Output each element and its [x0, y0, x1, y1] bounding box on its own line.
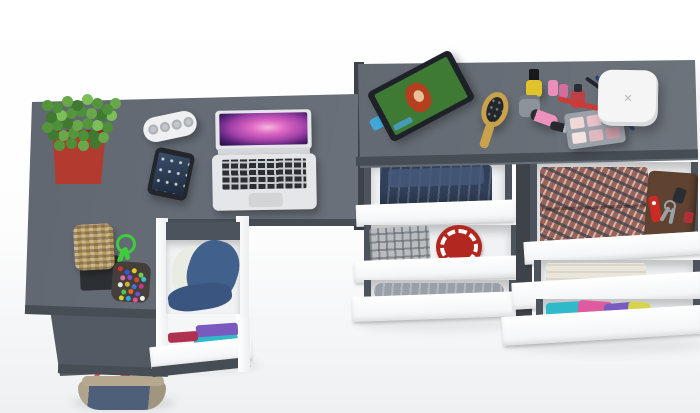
knife-emblem-icon: [652, 201, 657, 206]
bead-pouch-keychain: [110, 232, 154, 306]
wireless-device: ✕: [598, 69, 659, 126]
beads-icon: [118, 266, 123, 271]
laptop-trackpad: [249, 193, 283, 208]
laptop-screen: [219, 112, 308, 146]
wicker-basket: [73, 223, 115, 271]
tablet-frame: [366, 49, 475, 143]
chest-left-drawer1-front: [356, 199, 517, 227]
eyeshadow-pan: [605, 127, 620, 140]
pouch-body: [111, 261, 152, 304]
bag-trim: [82, 376, 164, 386]
tablet: [366, 62, 476, 142]
tablet-screen: [374, 56, 468, 135]
nail-polish-cap-icon: [574, 84, 582, 92]
jeans-fold: [388, 166, 485, 187]
speaker-grille-icon: [171, 119, 183, 131]
plant-foliage-icon: [42, 100, 53, 111]
eyeshadow-pan: [572, 131, 587, 144]
phone-screen: [151, 152, 190, 196]
eyeshadow-pan: [588, 129, 603, 142]
plant-pot-rim: [52, 130, 106, 138]
chest-left-drawer2-front: [354, 255, 519, 283]
eyeshadow-pan: [569, 117, 584, 130]
brush-handle: [479, 123, 495, 150]
nail-polish-pink: [548, 80, 558, 96]
folded-clothes-red: [168, 331, 199, 343]
potted-plant: [36, 92, 126, 192]
speaker-grille-icon: [183, 116, 195, 128]
pedestal-drawer-back: [166, 222, 240, 242]
furniture-top-view-render: ✕: [0, 0, 700, 413]
pedestal-right-panel-lower: [238, 318, 250, 372]
plant-pot: [50, 130, 108, 184]
speaker-grille-icon: [159, 121, 171, 133]
red-tag-icon: [683, 211, 694, 223]
laptop-keyboard: [222, 158, 307, 189]
macbook-laptop: [211, 109, 317, 211]
speaker-grille-icon: [147, 124, 159, 136]
screen-ui-bar-icon: [393, 116, 413, 131]
device-x-logo-icon: ✕: [598, 69, 659, 126]
